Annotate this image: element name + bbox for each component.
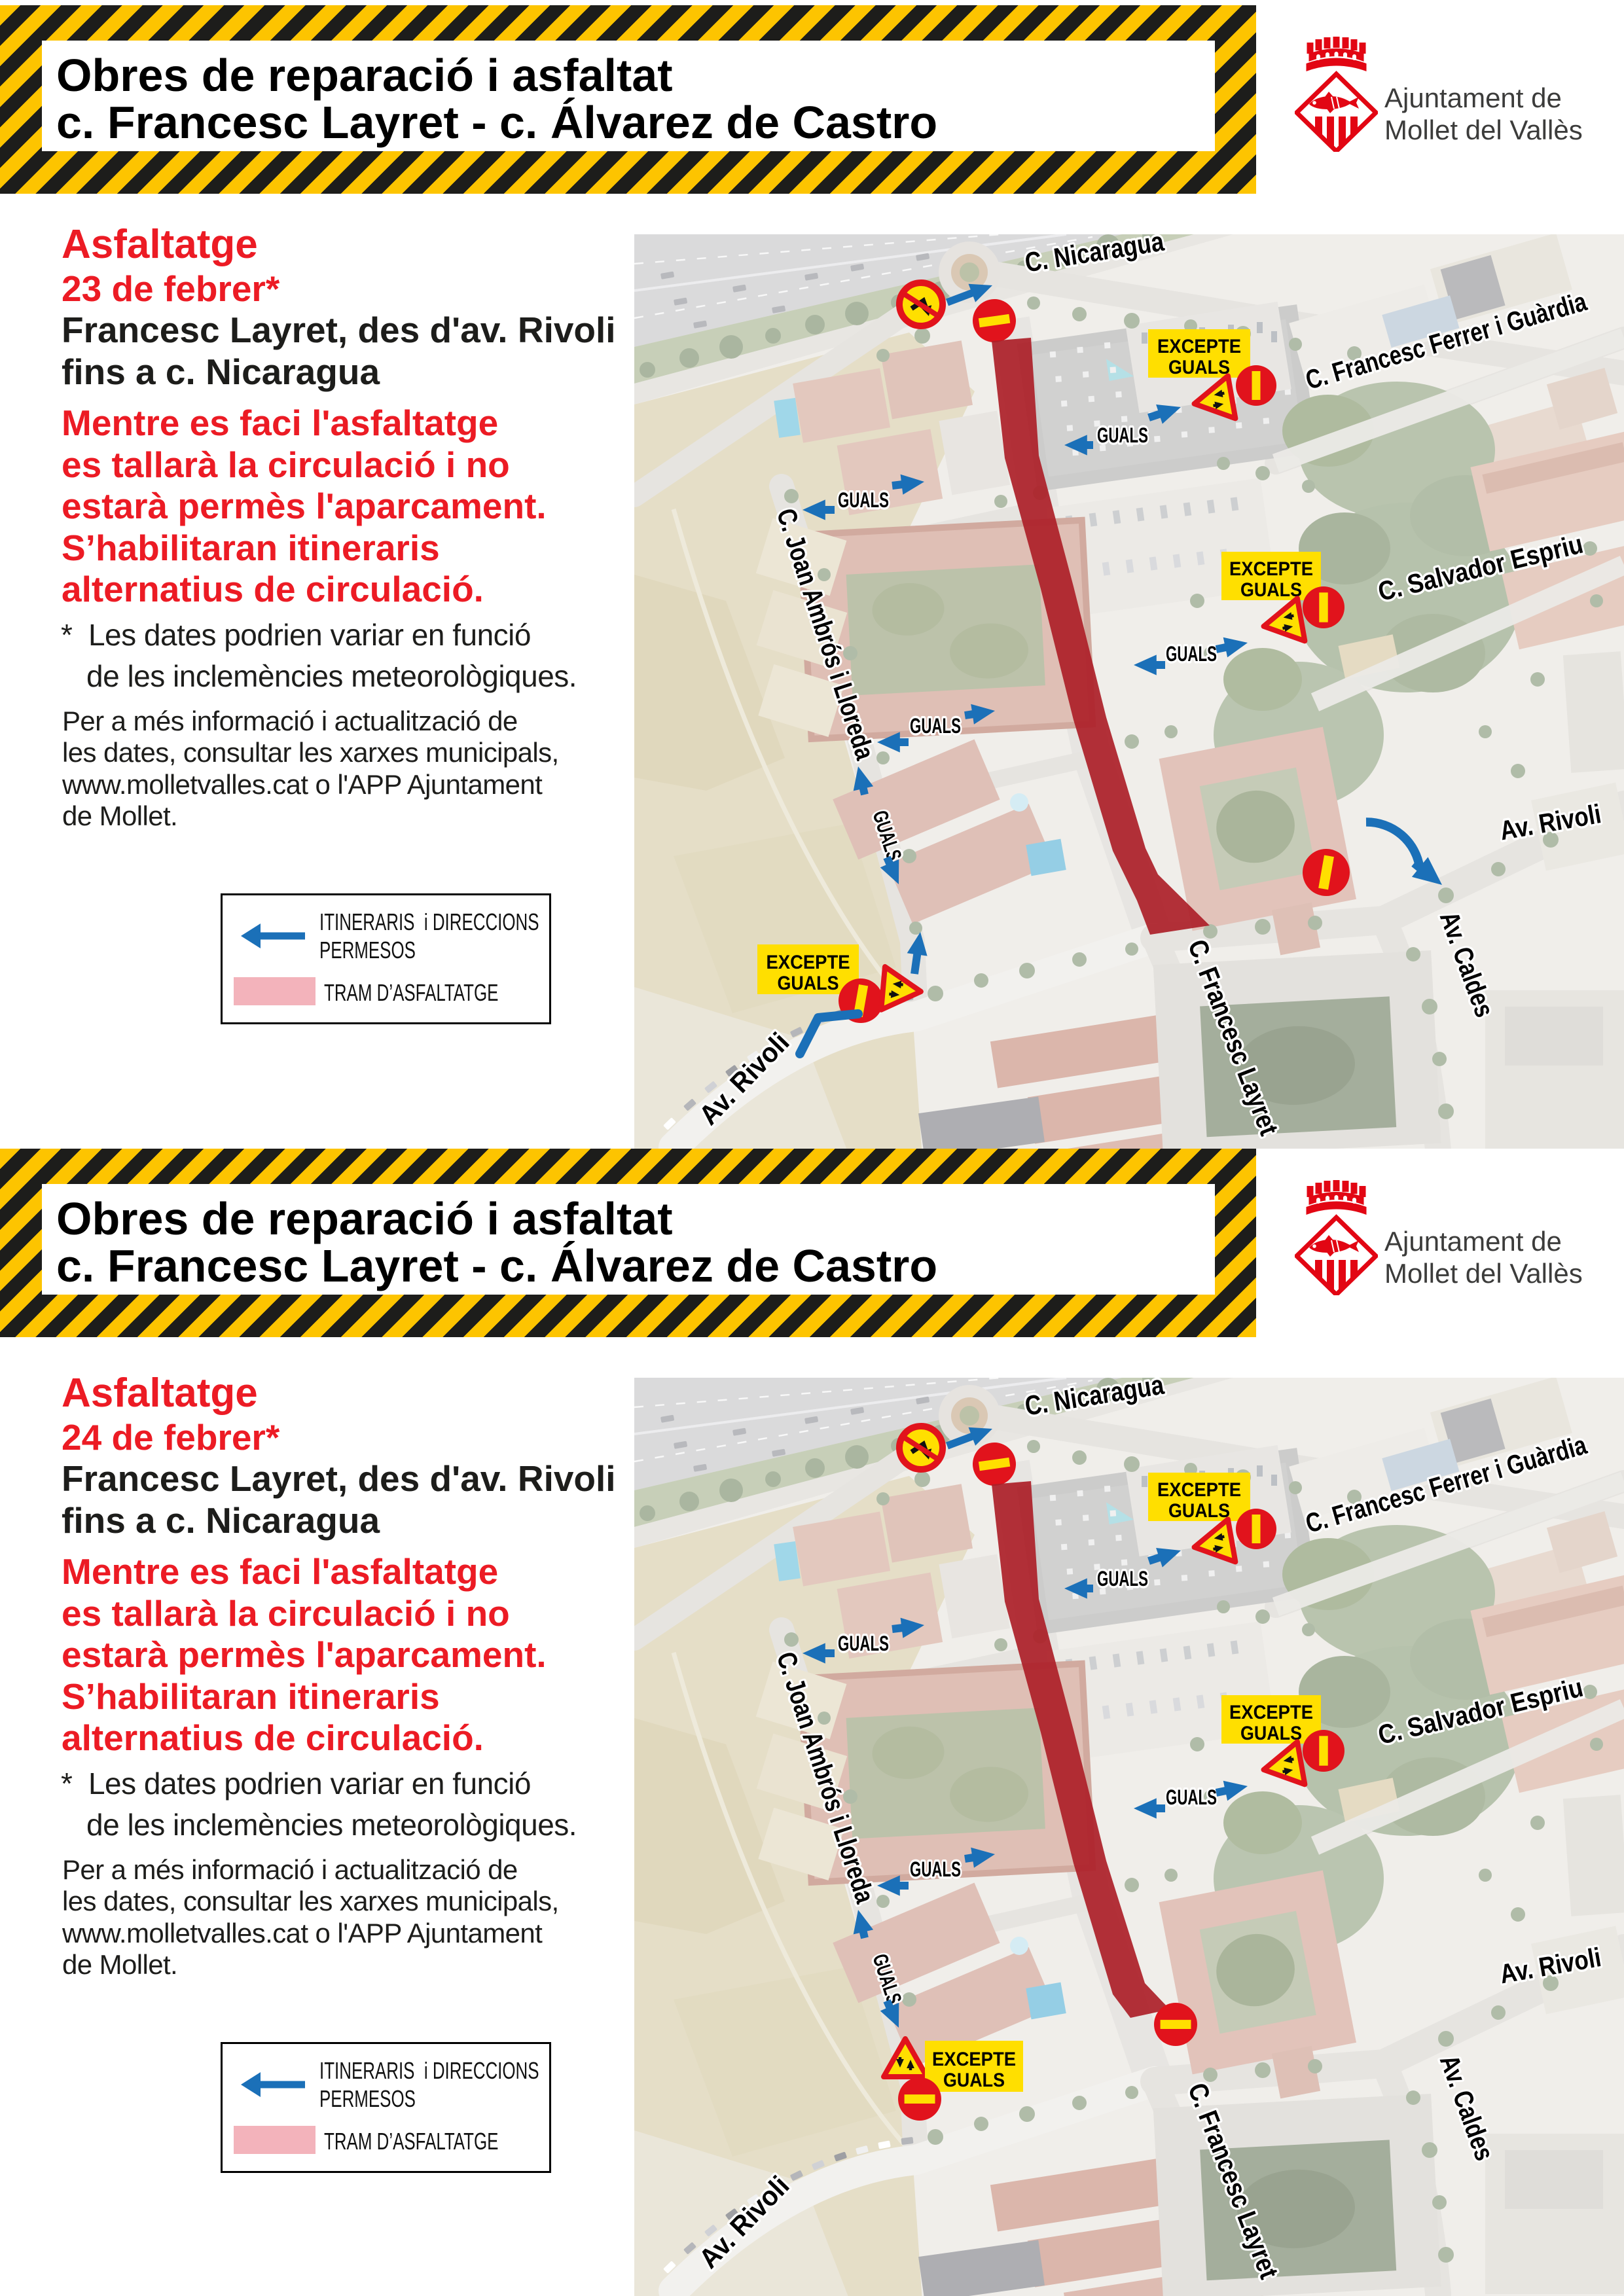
svg-text:GUALS: GUALS [1240, 579, 1302, 601]
svg-text:GUALS: GUALS [1166, 642, 1217, 666]
svg-text:GUALS: GUALS [1097, 423, 1148, 447]
svg-text:GUALS: GUALS [778, 973, 839, 994]
svg-text:GUALS: GUALS [943, 2070, 1005, 2091]
svg-text:EXCEPTE: EXCEPTE [767, 952, 850, 973]
svg-text:EXCEPTE: EXCEPTE [932, 2049, 1016, 2070]
svg-text:GUALS: GUALS [838, 488, 889, 512]
svg-text:GUALS: GUALS [910, 714, 961, 738]
svg-text:EXCEPTE: EXCEPTE [1229, 558, 1313, 580]
svg-text:GUALS: GUALS [1168, 357, 1230, 378]
svg-text:EXCEPTE: EXCEPTE [1157, 336, 1241, 357]
